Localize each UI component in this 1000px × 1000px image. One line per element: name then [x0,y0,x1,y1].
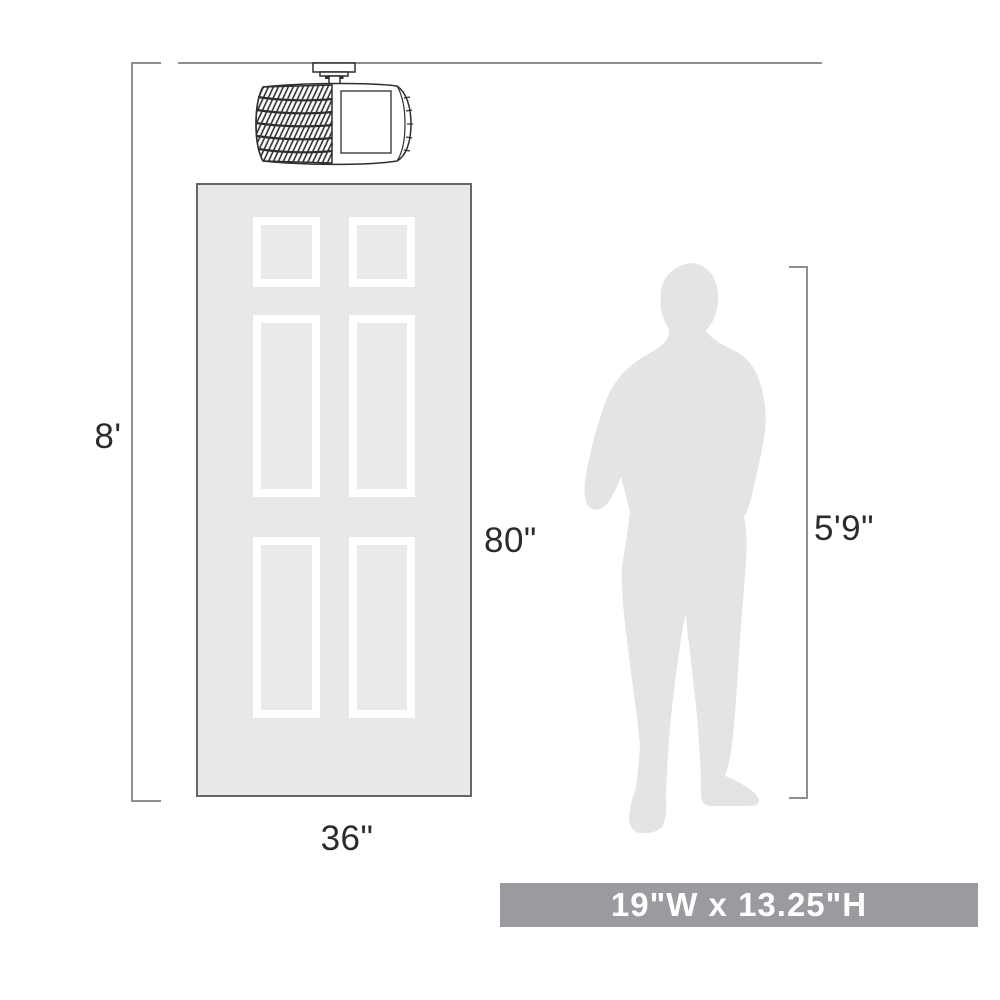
product-dimensions-banner: 19"W x 13.25"H [500,883,978,927]
fixture-screw-left [325,76,329,79]
dimension-diagram: 8' 80" 36" 5'9" 19"W x 13.25"H [0,0,1000,1000]
diagram-canvas [0,0,1000,1000]
person-height-label: 5'9" [814,509,874,549]
product-dimensions-label: 19"W x 13.25"H [611,886,867,924]
fixture-canopy [313,63,355,72]
door-illustration [196,183,472,797]
ceiling-height-label: 8' [84,417,132,457]
person-height-dimension-bracket [789,267,807,798]
door-panel-top-left [253,217,320,287]
light-fixture-illustration [256,63,413,164]
ceiling-height-dimension-bracket [132,63,161,801]
door-panel-bottom-left [253,537,320,718]
door-panel-bottom-right [349,537,415,718]
door-panel-top-right [349,217,415,287]
door-width-label: 36" [315,819,379,859]
door-height-label: 80" [484,521,537,561]
person-silhouette [585,263,766,833]
door-panel-middle-right [349,315,415,497]
door-panel-middle-left [253,315,320,497]
